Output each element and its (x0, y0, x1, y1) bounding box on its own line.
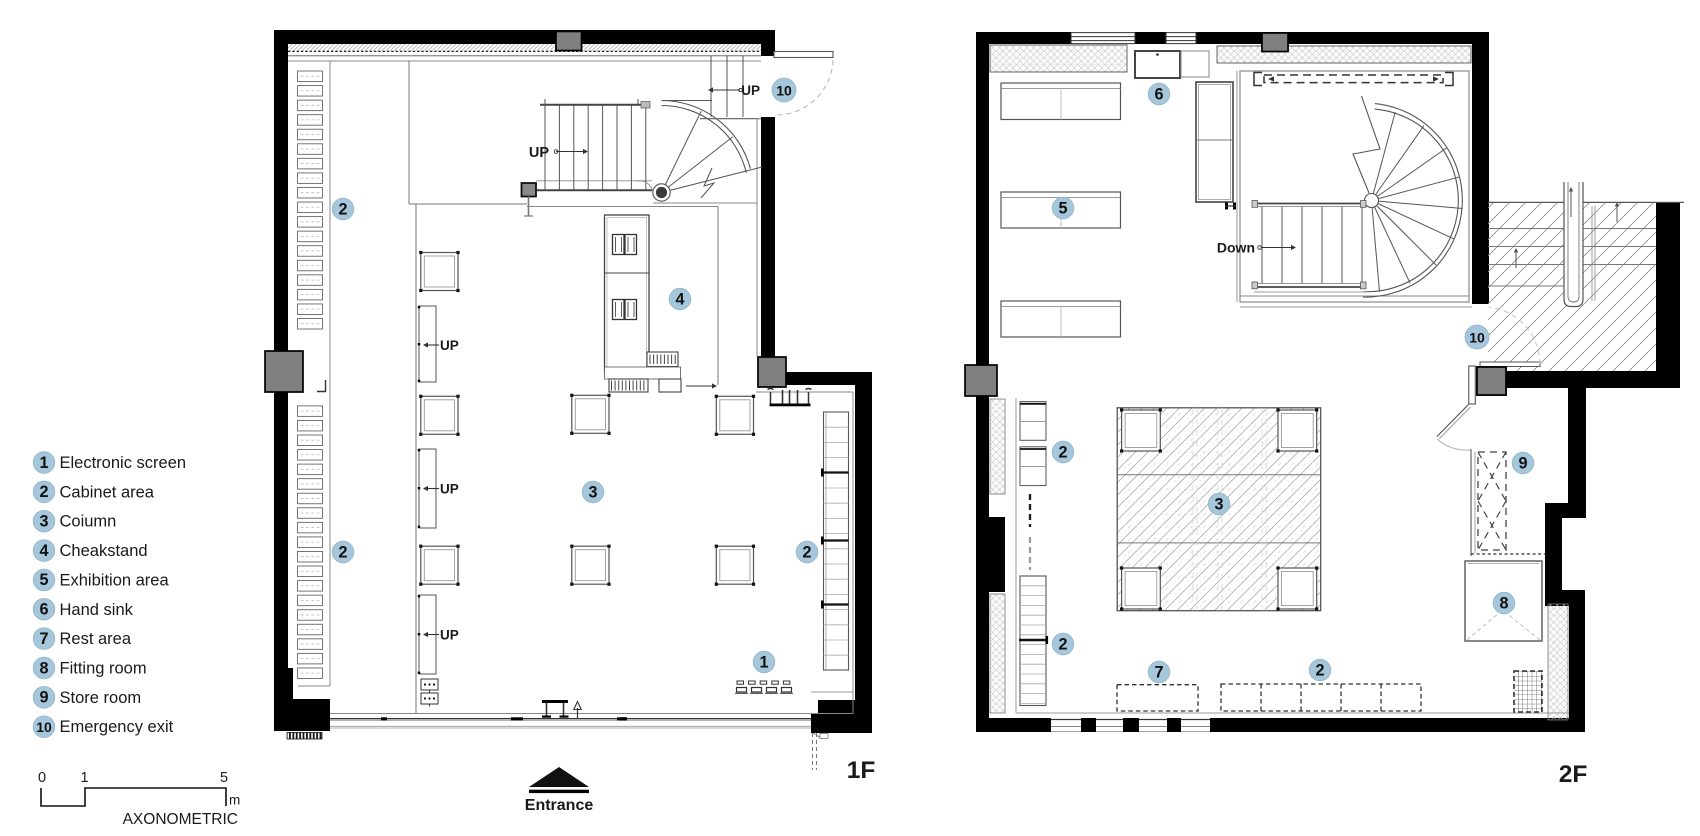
svg-text:Cheakstand: Cheakstand (60, 542, 148, 560)
svg-text:5: 5 (220, 770, 228, 786)
svg-text:UP: UP (440, 628, 459, 643)
svg-text:6: 6 (1154, 85, 1163, 103)
svg-text:Hand sink: Hand sink (60, 601, 134, 619)
svg-text:2: 2 (802, 543, 811, 561)
svg-text:2: 2 (338, 200, 347, 218)
svg-text:4: 4 (39, 542, 48, 560)
svg-text:1: 1 (759, 653, 768, 671)
svg-text:10: 10 (1469, 329, 1485, 345)
svg-text:2: 2 (1058, 635, 1067, 653)
svg-text:7: 7 (39, 630, 48, 648)
svg-text:m: m (229, 793, 240, 808)
svg-text:1: 1 (80, 770, 88, 786)
svg-text:8: 8 (39, 659, 48, 677)
svg-text:4: 4 (675, 290, 684, 308)
svg-text:Fitting room: Fitting room (60, 659, 147, 677)
svg-text:7: 7 (1154, 663, 1163, 681)
svg-text:Rest area: Rest area (60, 630, 132, 648)
svg-text:Exhibition area: Exhibition area (60, 571, 170, 589)
svg-text:UP: UP (440, 482, 459, 497)
svg-text:UP: UP (741, 83, 760, 98)
svg-text:5: 5 (39, 571, 48, 589)
svg-text:9: 9 (39, 689, 48, 707)
svg-text:0: 0 (38, 770, 46, 786)
svg-text:5: 5 (1058, 199, 1067, 217)
svg-text:Down: Down (1217, 240, 1255, 256)
svg-text:2F: 2F (1559, 761, 1588, 788)
svg-text:1F: 1F (847, 757, 876, 784)
svg-text:10: 10 (36, 719, 52, 735)
svg-text:1: 1 (39, 454, 48, 472)
svg-text:9: 9 (1518, 454, 1527, 472)
svg-text:Coiumn: Coiumn (60, 513, 117, 531)
svg-text:2: 2 (1315, 661, 1324, 679)
svg-text:3: 3 (1214, 495, 1223, 513)
svg-text:UP: UP (440, 338, 459, 353)
svg-text:Store room: Store room (60, 689, 142, 707)
svg-text:3: 3 (588, 483, 597, 501)
svg-text:Emergency exit: Emergency exit (60, 718, 174, 736)
svg-text:2: 2 (1058, 443, 1067, 461)
svg-text:UP: UP (529, 145, 549, 161)
svg-text:6: 6 (39, 601, 48, 619)
svg-text:AXONOMETRIC: AXONOMETRIC (123, 811, 238, 828)
svg-text:Electronic screen: Electronic screen (60, 454, 187, 472)
svg-text:2: 2 (338, 543, 347, 561)
svg-text:8: 8 (1499, 594, 1508, 612)
svg-text:3: 3 (39, 513, 48, 531)
svg-text:Entrance: Entrance (525, 797, 594, 814)
svg-text:Cabinet area: Cabinet area (60, 483, 155, 501)
svg-text:2: 2 (39, 483, 48, 501)
svg-text:10: 10 (776, 82, 792, 98)
